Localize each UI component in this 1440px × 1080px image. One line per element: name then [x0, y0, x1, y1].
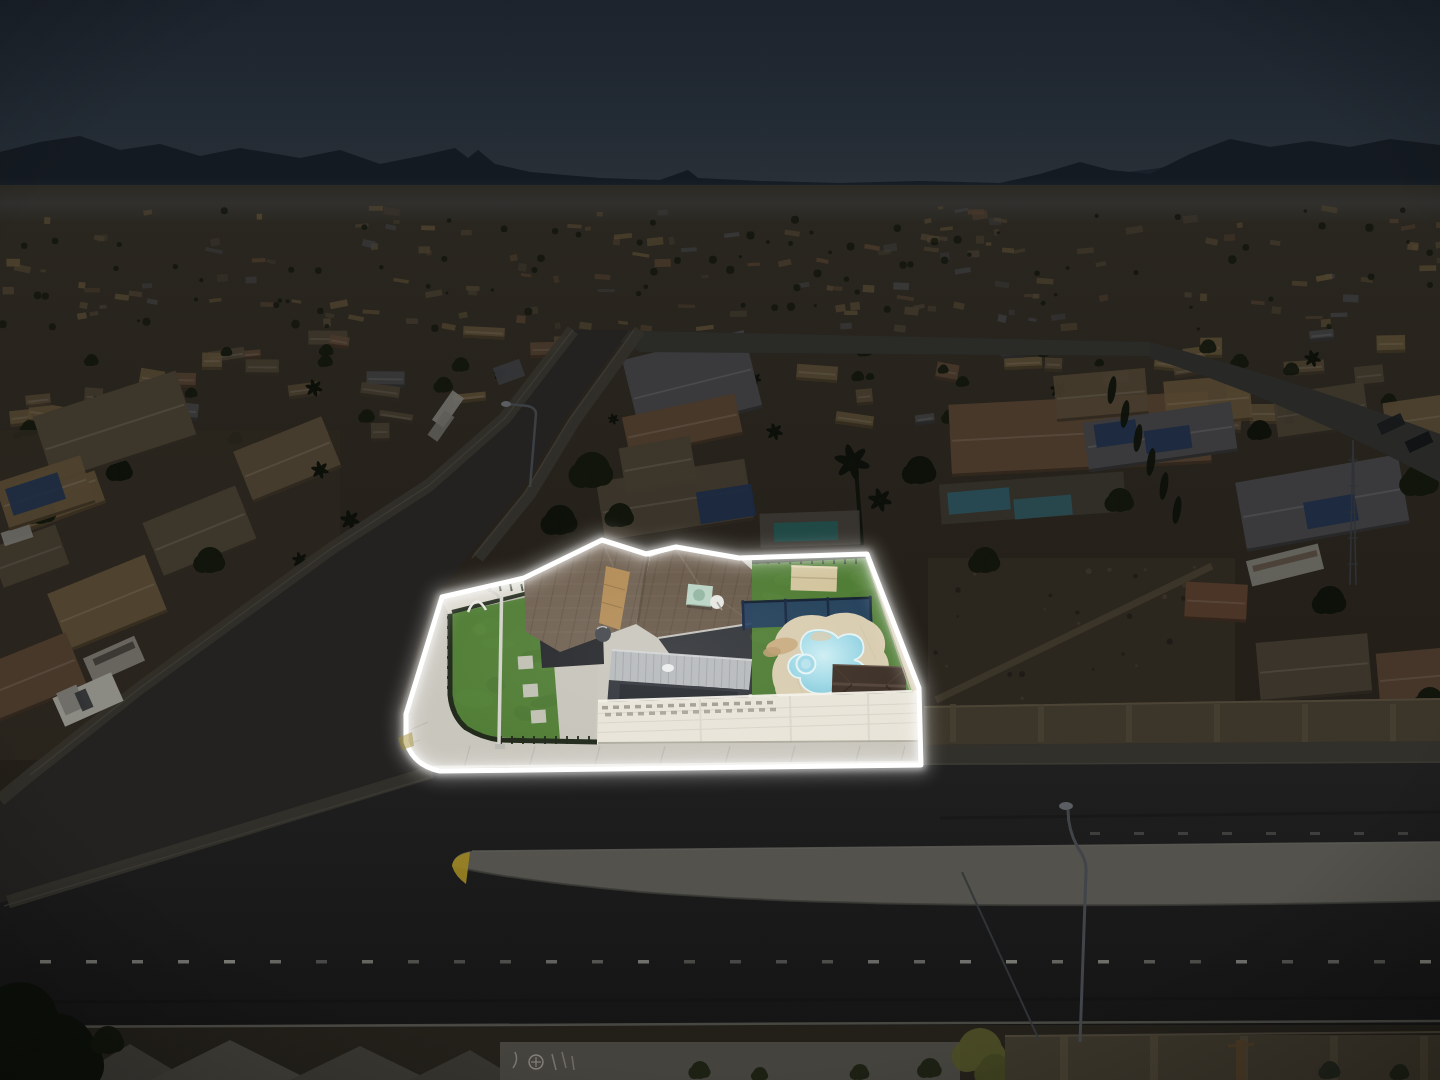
- vignette: [0, 0, 1440, 1080]
- aerial-photo: [0, 0, 1440, 1080]
- aerial-photo-stage: [0, 0, 1440, 1080]
